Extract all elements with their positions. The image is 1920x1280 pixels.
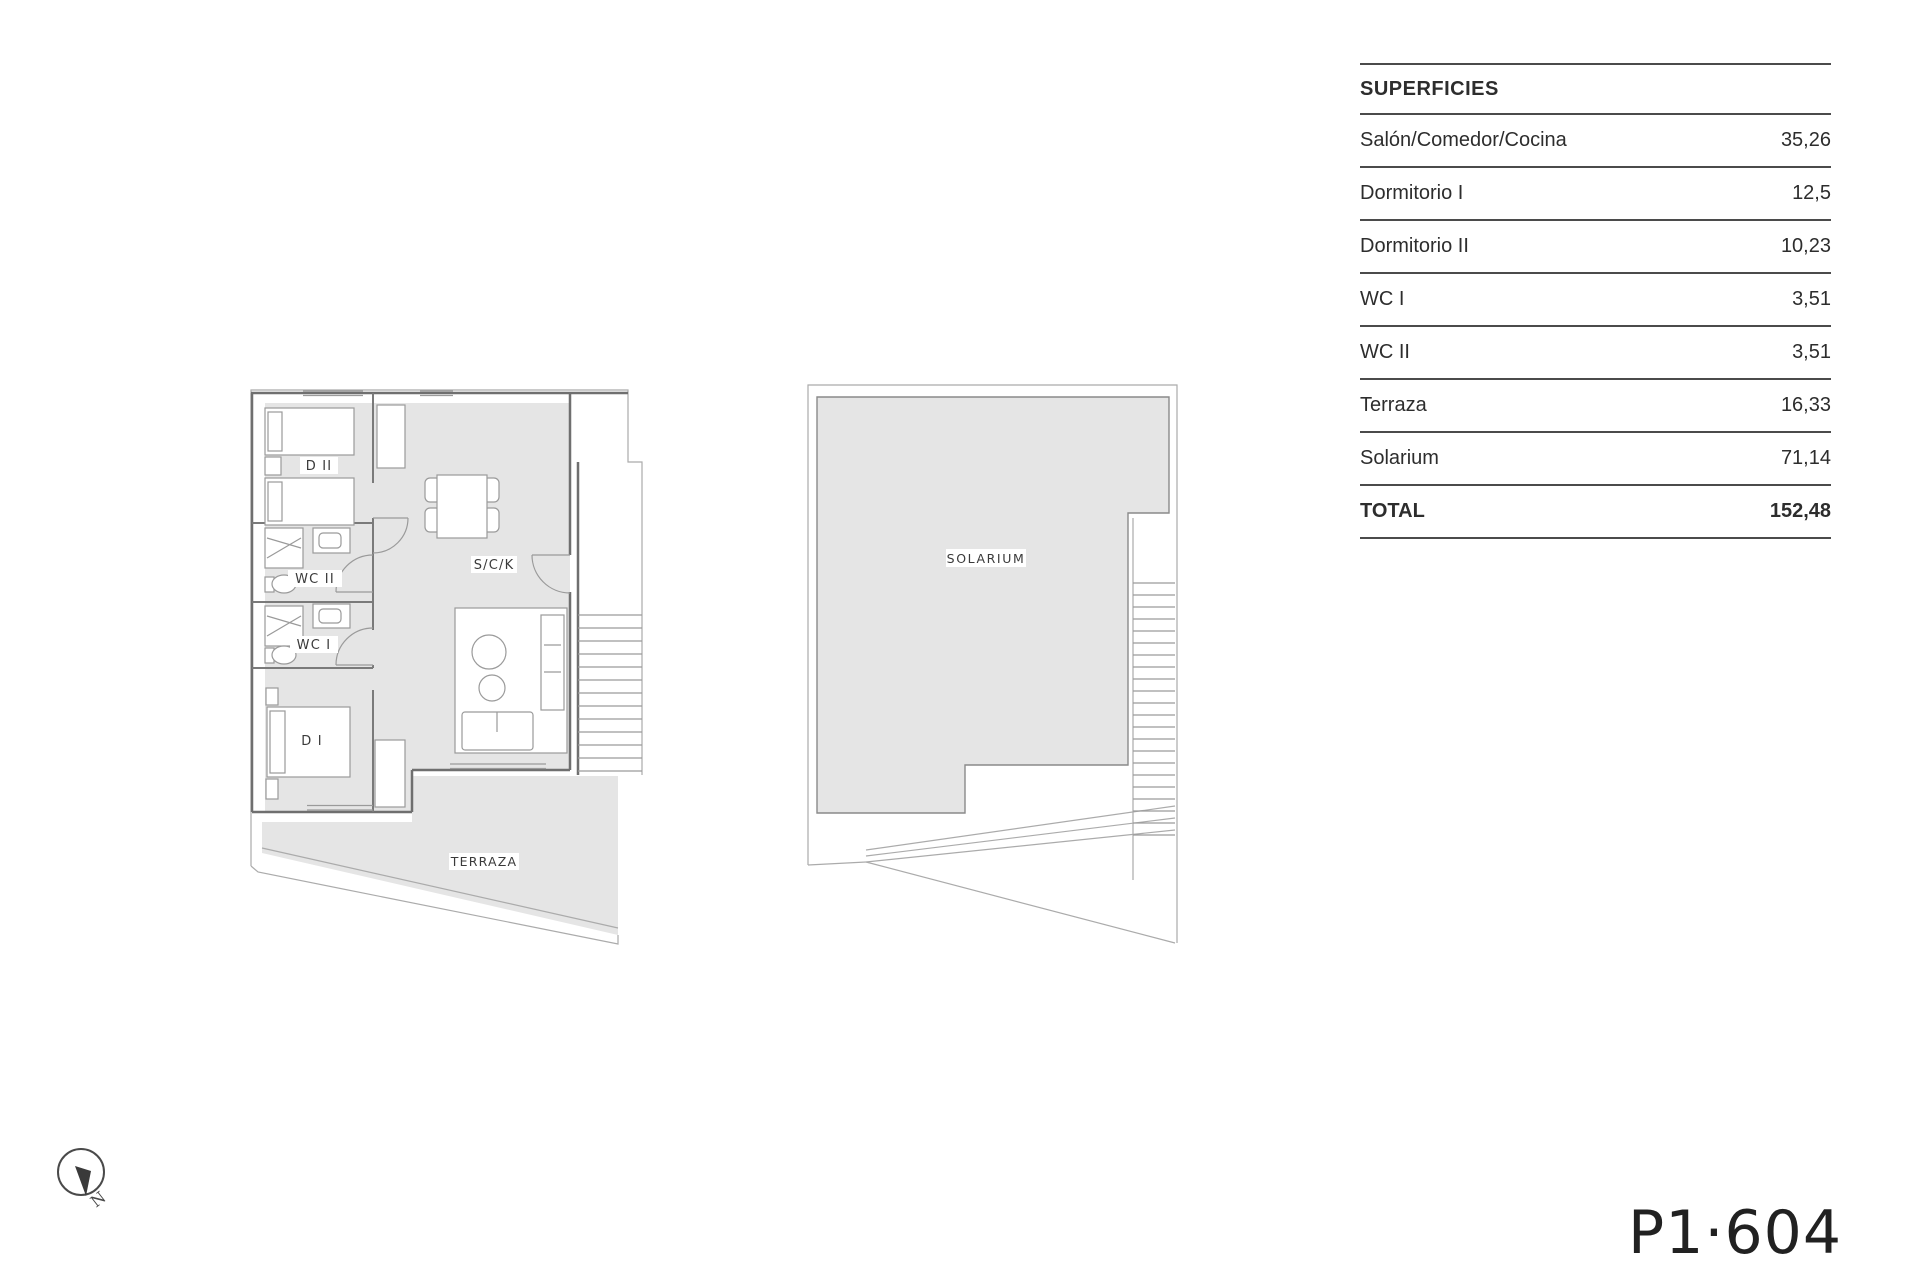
closet-bottom (375, 740, 405, 807)
room-label-d2: D II (306, 459, 333, 474)
row-label: Dormitorio I (1360, 182, 1463, 205)
row-value: 10,23 (1781, 235, 1831, 258)
solarium-floor-fill (817, 397, 1169, 813)
table-row: WC II 3,51 (1360, 327, 1831, 380)
solarium-stairs (1133, 518, 1175, 880)
surfaces-table: SUPERFICIES Salón/Comedor/Cocina 35,26 D… (1360, 63, 1831, 539)
nightstand (266, 688, 278, 705)
apartment-floor-plan: D II WC II WC I D I S/C/K TERRAZA (244, 380, 664, 950)
table-row: Terraza 16,33 (1360, 380, 1831, 433)
solarium-label-group: SOLARIUM (946, 549, 1026, 567)
row-label: WC I (1360, 288, 1404, 311)
row-label: Terraza (1360, 394, 1427, 417)
row-value: 3,51 (1792, 341, 1831, 364)
appliance-column (541, 615, 564, 710)
table-row: Dormitorio I 12,5 (1360, 168, 1831, 221)
row-value: 12,5 (1792, 182, 1831, 205)
floorplan-sheet: D II WC II WC I D I S/C/K TERRAZA (0, 0, 1920, 1280)
surfaces-table-header: SUPERFICIES (1360, 63, 1831, 115)
table-row: WC I 3,51 (1360, 274, 1831, 327)
room-label-solarium: SOLARIUM (947, 551, 1026, 566)
table-row: Solarium 71,14 (1360, 433, 1831, 486)
nightstand (265, 457, 281, 475)
table-row-total: TOTAL 152,48 (1360, 486, 1831, 539)
row-value: 71,14 (1781, 447, 1831, 470)
total-label: TOTAL (1360, 500, 1425, 523)
row-label: Solarium (1360, 447, 1439, 470)
plan-code: P1·604 (1628, 1198, 1842, 1268)
table-row: Salón/Comedor/Cocina 35,26 (1360, 115, 1831, 168)
table-row: Dormitorio II 10,23 (1360, 221, 1831, 274)
room-label-terraza: TERRAZA (450, 854, 517, 869)
nightstand (266, 779, 278, 799)
row-value: 35,26 (1781, 129, 1831, 152)
room-label-d1: D I (301, 734, 323, 749)
north-compass-icon: N (50, 1140, 130, 1230)
kitchen-unit (455, 608, 567, 753)
row-value: 3,51 (1792, 288, 1831, 311)
compass-north-label: N (87, 1188, 110, 1212)
row-label: Dormitorio II (1360, 235, 1469, 258)
stairs (578, 615, 642, 771)
row-value: 16,33 (1781, 394, 1831, 417)
total-value: 152,48 (1770, 500, 1831, 523)
room-label-sck: S/C/K (474, 558, 515, 573)
dining-table (437, 475, 487, 538)
room-label-wc2: WC II (295, 572, 335, 587)
solarium-floor-plan: SOLARIUM (800, 380, 1190, 955)
row-label: WC II (1360, 341, 1410, 364)
room-label-wc1: WC I (297, 638, 332, 653)
row-label: Salón/Comedor/Cocina (1360, 129, 1567, 152)
closet-top (377, 405, 405, 468)
compass-needle (75, 1166, 91, 1196)
